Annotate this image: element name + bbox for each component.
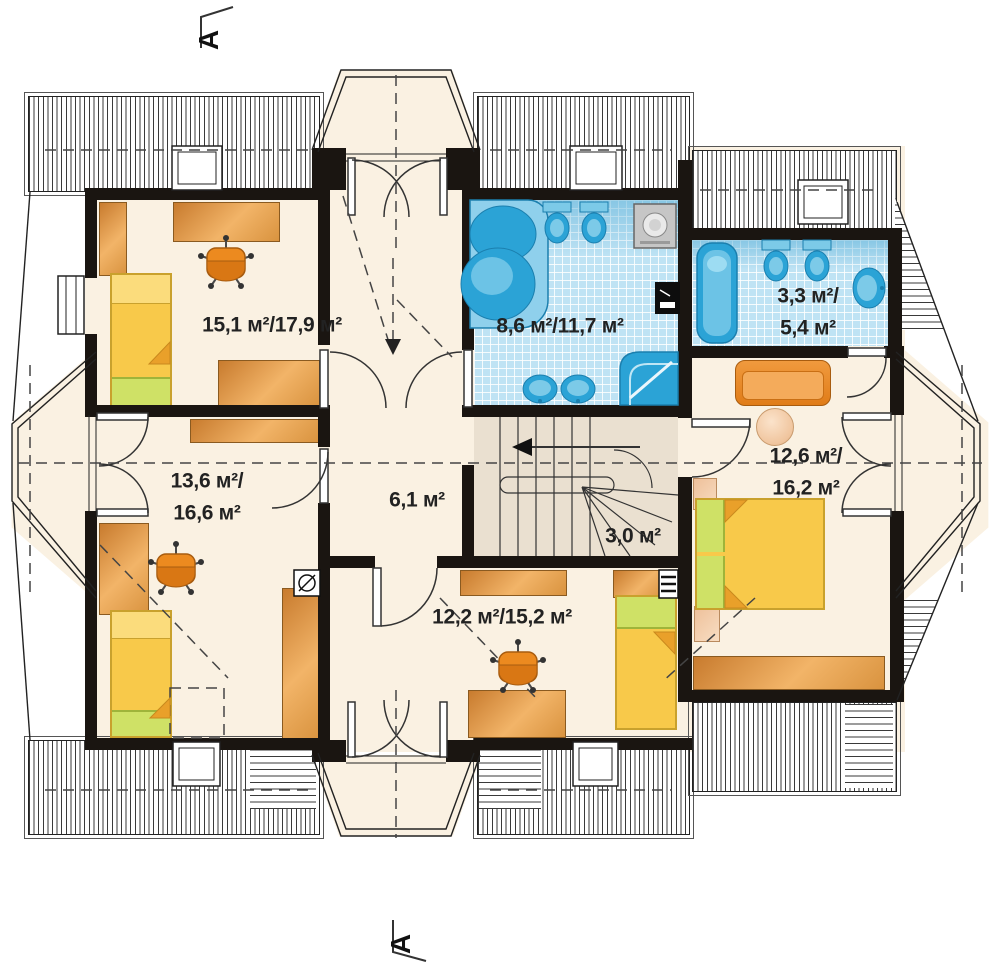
wall [85, 188, 97, 278]
roof-hatch-flank-bottom-right [895, 600, 967, 702]
room-label-staircase: 3,0 м² [605, 520, 661, 552]
wardrobe [99, 202, 127, 276]
sofa [735, 360, 831, 406]
wall [474, 738, 692, 750]
wall [85, 738, 318, 750]
section-letter: A [193, 30, 224, 50]
wall [890, 358, 904, 415]
wall [85, 334, 97, 415]
wall [692, 346, 848, 358]
bay-bottom [310, 755, 482, 839]
bay-right [902, 350, 992, 600]
roof-hatch-top-center [477, 96, 690, 192]
wall [890, 511, 904, 702]
wall [692, 228, 897, 240]
desk [173, 202, 280, 242]
room-label-hallway: 6,1 м² [389, 484, 445, 516]
room-label-bottom: 12,2 м²/15,2 м² [432, 601, 572, 633]
section-marker-top: A [193, 7, 233, 50]
bed [110, 610, 172, 738]
sofa-seat [742, 371, 824, 400]
room-label-bathroom-small: 3,3 м²/ 5,4 м² [777, 281, 838, 344]
wall [474, 188, 692, 200]
wall [85, 598, 97, 750]
wall [462, 465, 474, 568]
wall [462, 405, 692, 417]
wardrobe [282, 588, 320, 740]
window [58, 276, 84, 334]
wall [85, 188, 318, 200]
roof-hatch-top-left [28, 96, 320, 192]
wall [85, 511, 97, 598]
bed-pillow [697, 500, 725, 552]
desk [190, 419, 320, 443]
floor-plan: A A 15,1 м²/17,9 м² 8,6 м²/11,7 м² 3,3 м… [0, 0, 1000, 966]
wall [678, 477, 692, 568]
wall [85, 405, 330, 417]
bed [110, 273, 172, 407]
desk [99, 523, 149, 615]
wall [462, 188, 474, 350]
wall [318, 503, 330, 568]
room-label-bathroom-main: 8,6 м²/11,7 м² [496, 310, 623, 342]
bed-pillow [112, 612, 170, 639]
bed-pillow [697, 556, 725, 608]
roof-hatch-top-right [692, 150, 897, 230]
dresser [218, 360, 320, 407]
wall [318, 408, 330, 447]
wall [678, 160, 692, 418]
wall [692, 690, 904, 702]
section-letter: A [385, 934, 416, 954]
bed-pillow [617, 597, 675, 629]
wall [318, 568, 330, 750]
bay-pier [312, 740, 346, 762]
bay-top [310, 68, 482, 152]
roof-hatch-patch-3 [845, 704, 893, 788]
wall [888, 228, 902, 358]
section-marker-bottom: A [385, 920, 426, 961]
bay-pier [312, 148, 346, 190]
roof-hatch-patch-1 [250, 743, 316, 809]
bed-pillow [112, 275, 170, 304]
desk [468, 690, 566, 738]
bay-pier [446, 148, 480, 190]
wall [678, 568, 692, 702]
bed-foot [112, 710, 170, 736]
shelf [460, 570, 567, 596]
dresser [693, 656, 885, 690]
room-label-top-left: 15,1 м²/17,9 м² [202, 309, 342, 341]
nightstand [694, 606, 720, 642]
room-label-left: 13,6 м²/ 16,6 м² [171, 466, 244, 529]
bed-foot [112, 377, 170, 405]
roof-hatch-patch-2 [479, 743, 541, 809]
bay-pier [446, 740, 480, 762]
room-label-right: 12,6 м²/ 16,2 м² [770, 441, 843, 504]
bed [615, 595, 677, 730]
dresser [613, 570, 665, 598]
bathroom-main-floor [474, 200, 678, 405]
wall [437, 556, 692, 568]
double-bed [695, 498, 825, 610]
roof-hatch-flank-top-right [895, 198, 967, 330]
